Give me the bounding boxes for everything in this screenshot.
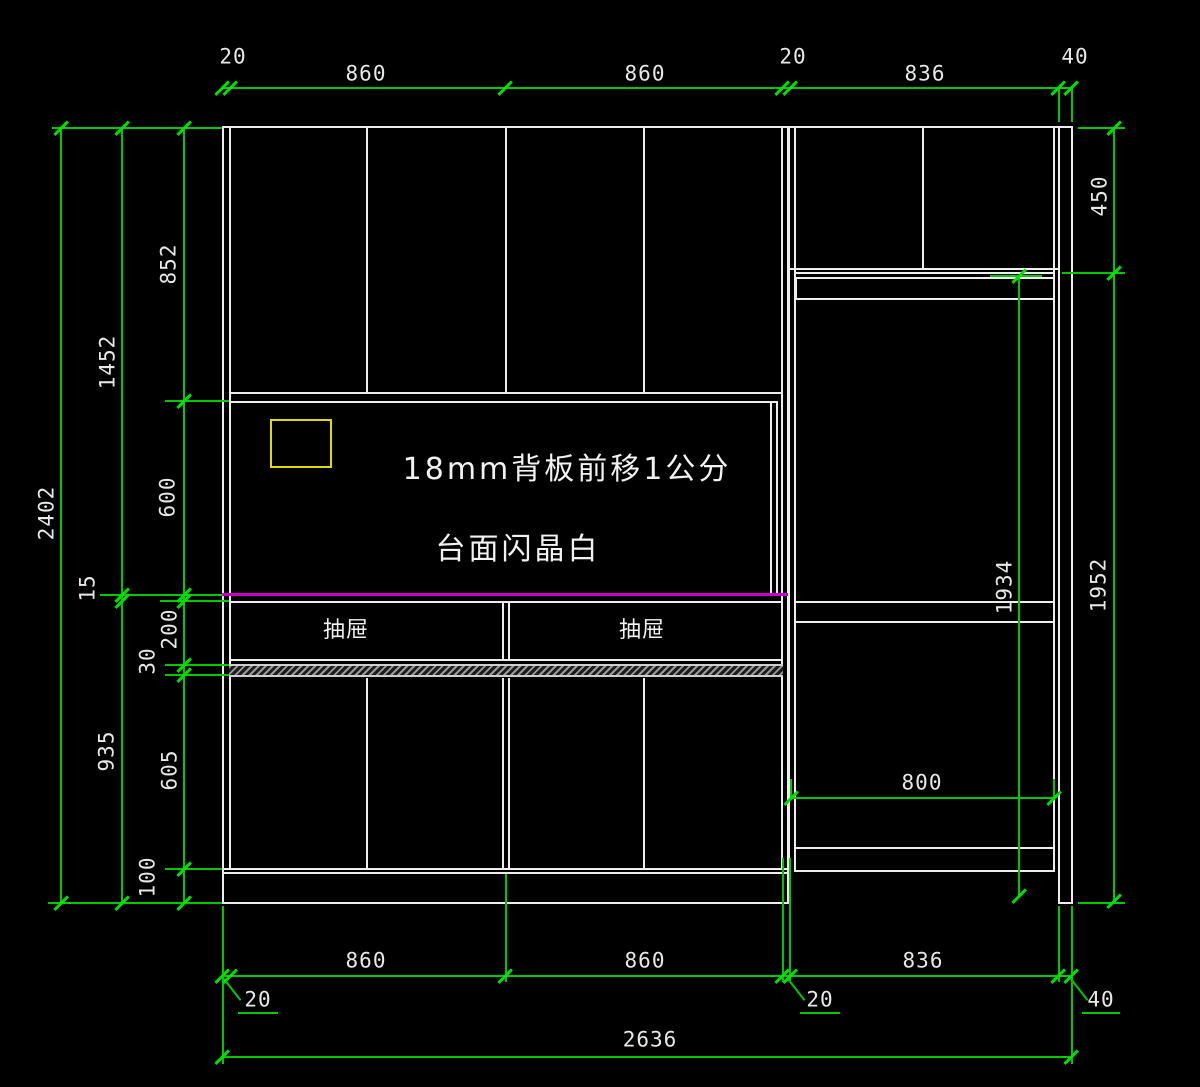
- drawer-label-right: 抽屉: [619, 620, 665, 642]
- cabinet-line: [229, 126, 231, 870]
- annotation-countertop: 台面闪晶白: [436, 535, 601, 565]
- dim-label-bottom-20-mid: 20: [806, 990, 833, 1011]
- dim-label-200: 200: [160, 609, 181, 650]
- cabinet-line: [222, 126, 224, 904]
- dim-label-100: 100: [138, 857, 159, 898]
- cabinet-line: [508, 678, 510, 868]
- countertop-line: [222, 593, 789, 596]
- cabinet-line: [229, 392, 783, 394]
- cabinet-line: [794, 847, 1055, 849]
- dim-label-top-860-left: 860: [346, 64, 387, 85]
- cabinet-line: [643, 678, 645, 868]
- extension-line: [782, 858, 784, 982]
- dim-label-605: 605: [160, 750, 181, 791]
- extension-line: [48, 902, 222, 904]
- dim-label-600: 600: [158, 477, 179, 518]
- extension-line: [160, 600, 229, 602]
- dim-label-top-20-left: 20: [219, 47, 246, 68]
- leader-underline: [238, 1012, 278, 1014]
- dim-label-bottom-836: 836: [903, 951, 944, 972]
- extension-line: [1071, 906, 1073, 1064]
- cabinet-line: [366, 126, 368, 394]
- annotation-backboard: 18mm背板前移1公分: [403, 455, 732, 485]
- dimension-line: [222, 975, 1073, 977]
- cabinet-line: [794, 621, 1055, 623]
- dimension-line: [60, 127, 62, 903]
- leader-line: [787, 978, 805, 1001]
- cabinet-line: [794, 870, 1055, 872]
- hatch-strip: [229, 664, 783, 677]
- cabinet-line: [502, 601, 504, 661]
- cabinet-line: [794, 272, 1055, 274]
- leader-underline: [800, 1012, 840, 1014]
- cabinet-line: [508, 601, 510, 661]
- cabinet-line: [776, 401, 778, 594]
- cabinet-line: [1071, 126, 1073, 904]
- cabinet-line: [1053, 126, 1055, 872]
- dim-label-bottom-20-left: 20: [244, 990, 271, 1011]
- extension-line: [1078, 902, 1125, 904]
- dimension-line: [790, 797, 1055, 799]
- extension-line: [52, 127, 222, 129]
- dim-label-bottom-40: 40: [1087, 990, 1114, 1011]
- cabinet-line: [1058, 126, 1060, 904]
- dim-label-1452: 1452: [98, 335, 119, 390]
- dimension-line: [1113, 127, 1115, 903]
- dimension-line: [121, 127, 123, 903]
- cabinet-line: [1058, 902, 1073, 904]
- cabinet-line: [502, 678, 504, 868]
- extension-line: [165, 868, 222, 870]
- extension-line: [1071, 89, 1073, 122]
- dim-label-bottom-860-right: 860: [625, 951, 666, 972]
- cabinet-line: [229, 659, 783, 661]
- dim-label-top-40: 40: [1061, 47, 1088, 68]
- cabinet-line: [922, 126, 924, 270]
- dim-label-2402: 2402: [37, 486, 58, 541]
- extension-line: [165, 664, 229, 666]
- cabinet-line: [222, 126, 1073, 128]
- cabinet-line: [229, 601, 783, 603]
- cabinet-line: [643, 126, 645, 394]
- dim-label-935: 935: [97, 731, 118, 772]
- dimension-line: [1018, 275, 1020, 897]
- cabinet-line: [781, 126, 783, 870]
- extension-line: [1078, 127, 1125, 129]
- cabinet-line: [222, 868, 789, 870]
- dim-label-top-836: 836: [905, 64, 946, 85]
- dim-label-1934: 1934: [995, 560, 1016, 615]
- dim-label-2636: 2636: [623, 1030, 678, 1051]
- cabinet-line: [366, 678, 368, 868]
- highlight-box: [270, 419, 332, 468]
- cabinet-line: [794, 126, 796, 872]
- cabinet-line: [788, 126, 790, 872]
- dim-label-bottom-860-left: 860: [346, 951, 387, 972]
- dimension-line: [222, 87, 1073, 89]
- dim-label-15: 15: [78, 574, 99, 601]
- extension-line: [165, 674, 229, 676]
- dim-label-30: 30: [138, 647, 159, 674]
- cabinet-line: [505, 126, 507, 394]
- extension-line: [165, 400, 229, 402]
- cabinet-line: [229, 401, 778, 403]
- extension-line: [789, 858, 791, 982]
- dim-label-450: 450: [1090, 176, 1111, 217]
- dim-label-top-20-mid: 20: [779, 47, 806, 68]
- dim-label-top-860-right: 860: [625, 64, 666, 85]
- drawer-label-left: 抽屉: [323, 620, 369, 642]
- dim-label-1952: 1952: [1089, 558, 1110, 613]
- extension-line: [222, 906, 224, 1064]
- extension-line: [1058, 89, 1060, 122]
- extension-line: [505, 874, 507, 982]
- dim-label-800: 800: [902, 773, 943, 794]
- leader-underline: [1082, 1012, 1120, 1014]
- dim-label-852: 852: [159, 244, 180, 285]
- dimension-line: [183, 127, 185, 903]
- cabinet-line: [788, 268, 1060, 270]
- cad-drawing-canvas: 18mm背板前移1公分 台面闪晶白 抽屉 抽屉: [0, 0, 1200, 1087]
- dimension-line: [222, 1056, 1073, 1058]
- cabinet-line: [770, 401, 772, 594]
